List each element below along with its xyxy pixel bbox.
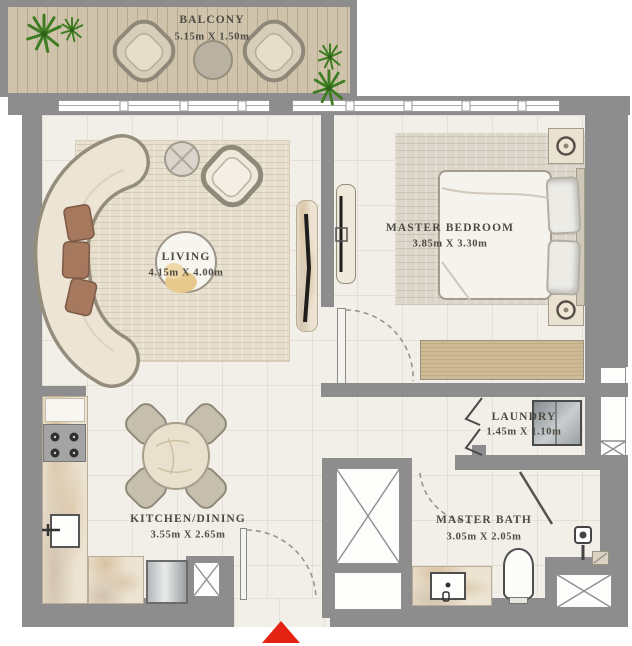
laundry-bath-wall xyxy=(455,455,628,470)
bedroom-door-leaf xyxy=(337,308,346,384)
laundry-dims: 1.45m X 1.10m xyxy=(487,427,562,438)
master-bath-dims: 3.05m X 2.05m xyxy=(447,532,522,543)
bedroom-window xyxy=(292,100,560,112)
master-bedroom-dims: 3.85m X 3.30m xyxy=(413,239,488,250)
entry-door-leaf xyxy=(240,528,247,600)
living-window xyxy=(58,100,270,112)
master-bath-label: MASTER BATH xyxy=(436,514,532,526)
balcony-dims: 5.15m X 1.50m xyxy=(175,32,250,43)
floor-drain xyxy=(592,551,609,565)
kitchen-sink xyxy=(50,514,80,548)
kitchen-wall-stub xyxy=(40,386,86,396)
pillow xyxy=(546,176,582,235)
bedroom-tv-console xyxy=(336,184,356,284)
right-wall-mid xyxy=(585,367,600,457)
stove xyxy=(43,424,86,462)
entry-recess xyxy=(234,598,330,627)
toilet-base xyxy=(509,597,528,604)
central-shaft xyxy=(336,468,400,564)
shower-head xyxy=(574,526,592,544)
kitchen-dining-dims: 3.55m X 2.65m xyxy=(151,530,226,541)
entry-duct-box xyxy=(193,562,220,597)
left-exterior-wall xyxy=(22,96,42,627)
master-bedroom-label: MASTER BEDROOM xyxy=(386,222,514,234)
balcony-label: BALCONY xyxy=(179,14,244,26)
floor-plan: BALCONY 5.15m X 1.50m LIVING 4.15m X 4.0… xyxy=(0,0,632,646)
kitchen-counter-bottom xyxy=(88,556,144,604)
kitchen-dining-label: KITCHEN/DINING xyxy=(130,513,246,525)
hall-cabinet xyxy=(334,572,402,610)
toilet xyxy=(503,548,534,601)
bedroom-wardrobe xyxy=(420,340,584,380)
shower-tray xyxy=(556,574,612,608)
bath-sink xyxy=(430,572,466,600)
fridge xyxy=(146,560,188,604)
nightstand-top xyxy=(548,128,584,164)
bed-mattress xyxy=(438,170,552,300)
kitchen-cabinet xyxy=(45,398,85,422)
washing-machine xyxy=(532,400,582,446)
laundry-label: LAUNDRY xyxy=(492,411,557,423)
living-tv-unit xyxy=(296,200,318,332)
service-shaft xyxy=(600,367,626,457)
bedroom-hall-wall xyxy=(321,383,628,397)
living-dims: 4.15m X 4.00m xyxy=(149,268,224,279)
pillow xyxy=(546,239,581,295)
living-bedroom-divider-wall xyxy=(321,115,334,307)
right-exterior-wall-upper xyxy=(585,96,628,367)
living-label: LIVING xyxy=(162,251,211,263)
